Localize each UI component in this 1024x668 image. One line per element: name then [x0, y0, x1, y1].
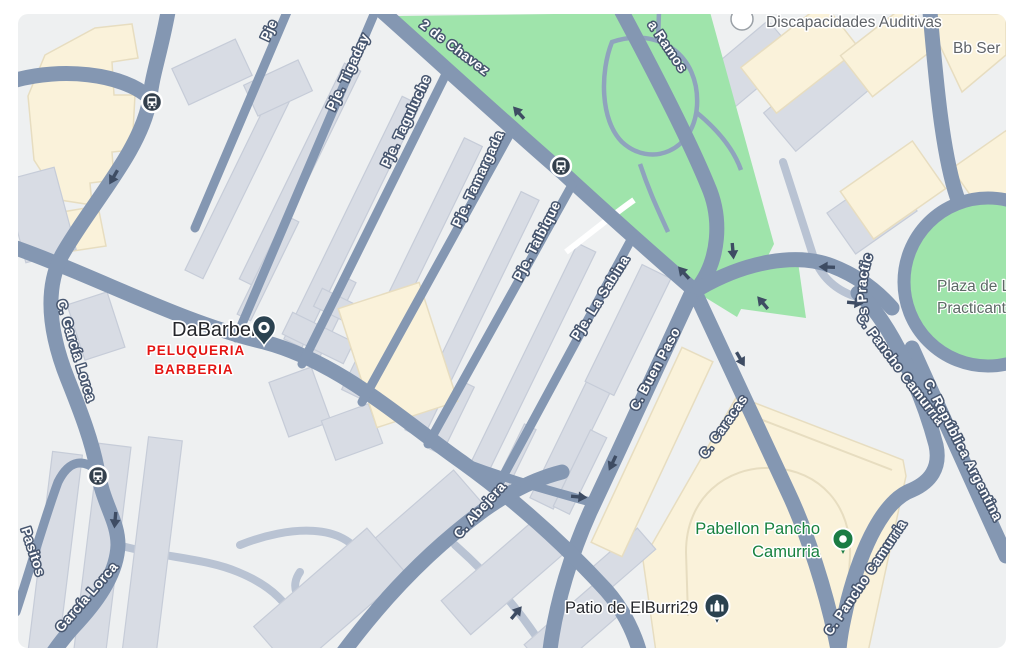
poi-label-pabellon-line1[interactable]: Pabellon Pancho	[695, 520, 820, 538]
bus-stop-icon[interactable]	[142, 92, 162, 112]
annotation-peluqueria-line1: PELUQUERIA	[147, 343, 246, 358]
poi-circle-icon[interactable]	[731, 8, 753, 30]
poi-label-bb-ser[interactable]: Bb Ser	[953, 40, 1000, 57]
poi-label-discapacidades[interactable]: Discapacidades Auditivas	[766, 14, 942, 31]
plaza-name-line1[interactable]: Plaza de L	[937, 278, 1011, 295]
bus-stop-icon[interactable]	[551, 156, 571, 176]
poi-label-patio[interactable]: Patio de ElBurri29	[565, 599, 698, 617]
poi-label-dabarber[interactable]: DaBarber	[172, 319, 258, 341]
bus-stop-icon[interactable]	[88, 466, 108, 486]
map-canvas[interactable]: C. García Lorca García Lorca Pasitos Pje…	[0, 0, 1024, 668]
poi-label-pabellon-line2[interactable]: Camurria	[752, 543, 821, 561]
annotation-peluqueria-line2: BARBERIA	[154, 362, 233, 377]
plaza-name-line2[interactable]: Practicant	[937, 300, 1007, 317]
